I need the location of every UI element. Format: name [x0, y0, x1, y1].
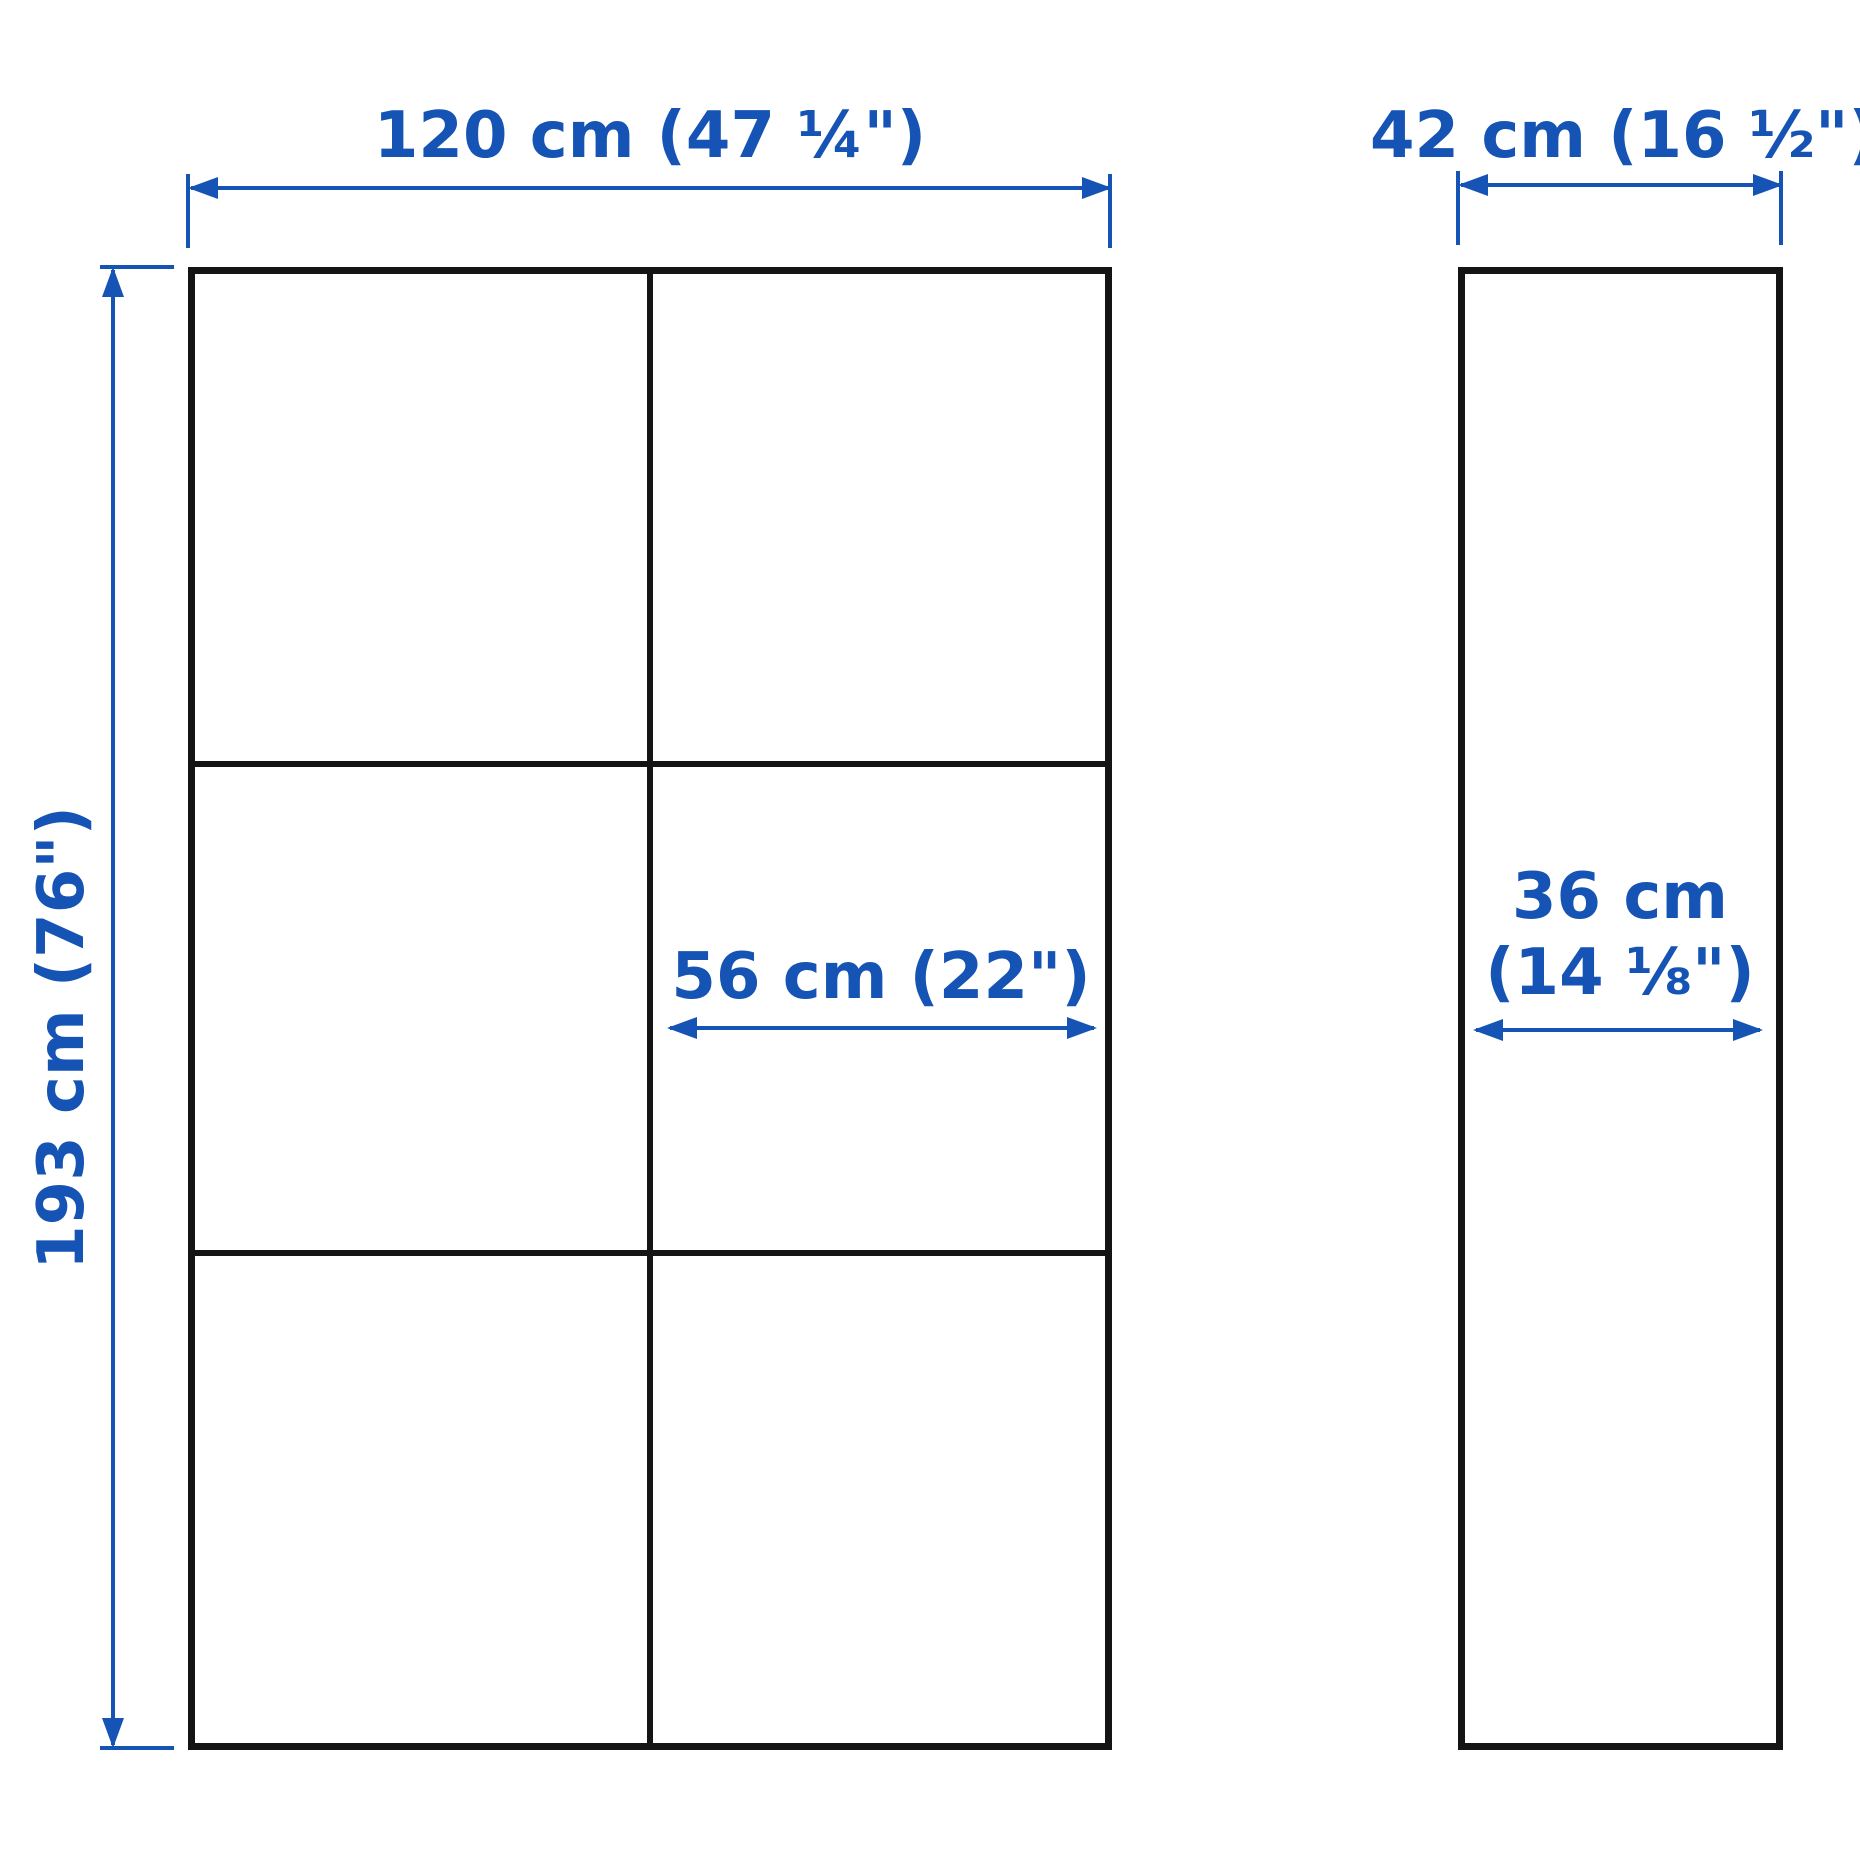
front-view-horizontal-divider-1 — [195, 761, 1105, 767]
overall-width-label: 120 cm (47 ¼") — [188, 98, 1112, 174]
dimension-diagram: 120 cm (47 ¼") 42 cm (16 ½") 193 cm (76"… — [0, 0, 1860, 1860]
dimension-line — [1476, 1028, 1760, 1032]
dimension-line — [111, 270, 115, 1745]
arrowhead-down-icon — [102, 1718, 124, 1748]
inner-depth-label: 36 cm (14 ⅛") — [1460, 859, 1780, 1011]
overall-height-label: 193 cm (76") — [24, 758, 100, 1318]
dimension-line — [670, 1026, 1094, 1030]
inner-depth-label-line1: 36 cm — [1460, 859, 1780, 935]
arrowhead-right-icon — [1753, 174, 1783, 196]
dimension-line — [191, 186, 1109, 190]
inner-depth-label-line2: (14 ⅛") — [1460, 935, 1780, 1011]
arrowhead-right-icon — [1067, 1017, 1097, 1039]
dimension-line — [1461, 183, 1780, 187]
compartment-width-label: 56 cm (22") — [656, 939, 1106, 1015]
overall-depth-label: 42 cm (16 ½") — [1370, 98, 1860, 174]
front-view-horizontal-divider-2 — [195, 1250, 1105, 1256]
arrowhead-right-icon — [1082, 177, 1112, 199]
arrowhead-right-icon — [1733, 1019, 1763, 1041]
front-view-vertical-divider — [647, 274, 653, 1743]
